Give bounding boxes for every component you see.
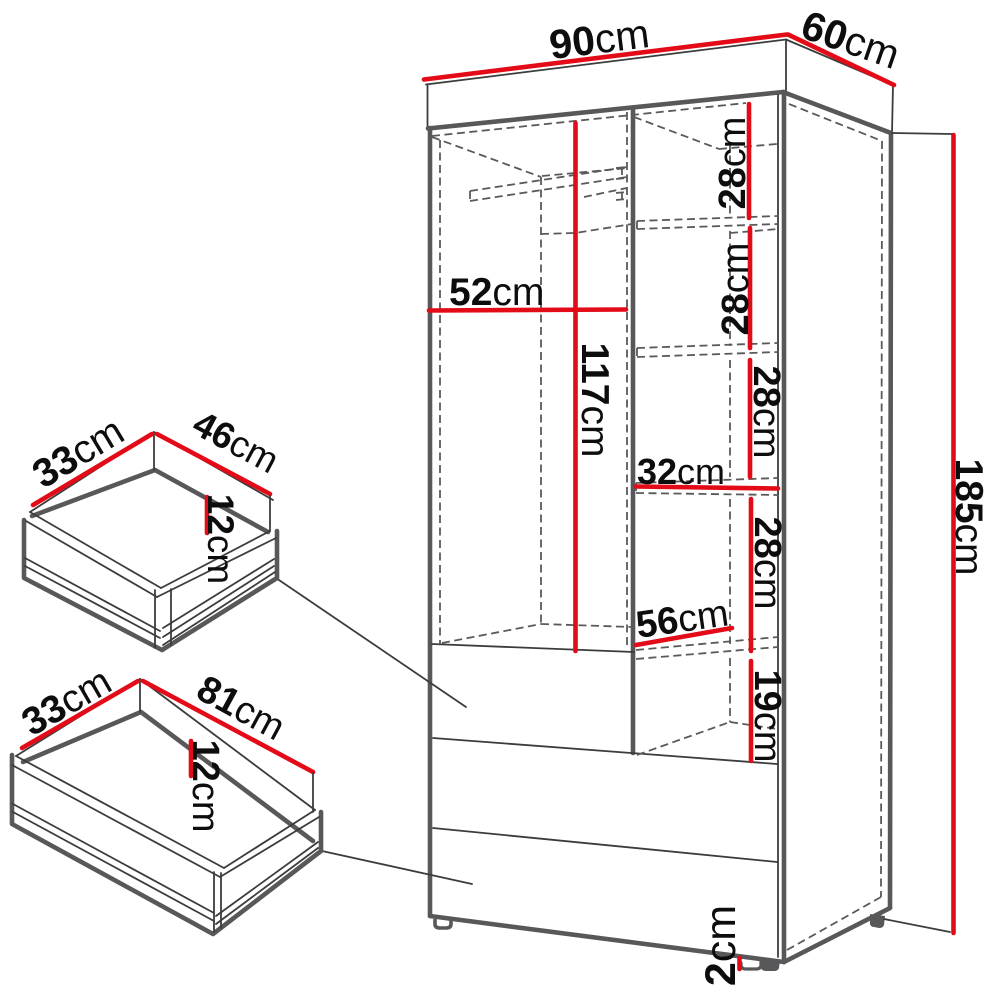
svg-text:28cm: 28cm: [745, 366, 787, 459]
svg-text:52cm: 52cm: [449, 271, 544, 314]
svg-text:28cm: 28cm: [746, 517, 788, 610]
svg-text:19cm: 19cm: [746, 670, 788, 763]
svg-text:28cm: 28cm: [715, 243, 757, 336]
svg-text:32cm: 32cm: [637, 451, 725, 492]
svg-text:12cm: 12cm: [184, 740, 226, 833]
svg-text:185cm: 185cm: [947, 458, 990, 575]
svg-text:2cm: 2cm: [697, 905, 745, 986]
svg-text:12cm: 12cm: [200, 494, 241, 584]
svg-text:28cm: 28cm: [712, 117, 754, 210]
svg-text:117cm: 117cm: [573, 343, 616, 458]
